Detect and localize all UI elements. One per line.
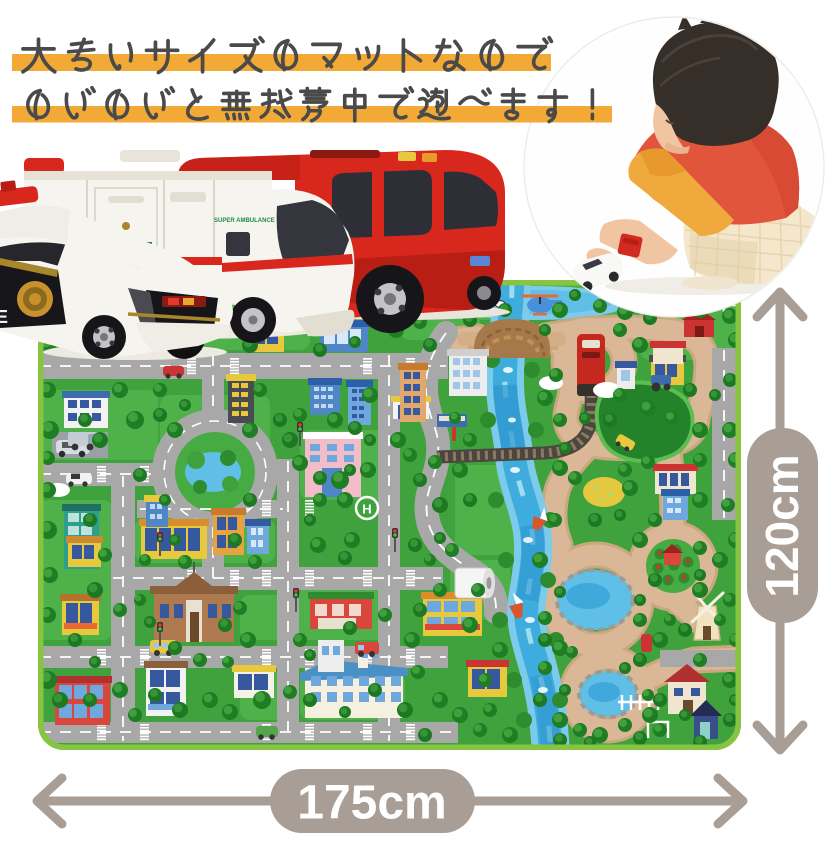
svg-text:120cm: 120cm [756,454,808,597]
svg-text:H: H [362,502,371,517]
svg-text:175cm: 175cm [297,777,446,830]
svg-text:E: E [0,307,8,327]
svg-text:SUPER AMBULANCE: SUPER AMBULANCE [214,218,275,224]
